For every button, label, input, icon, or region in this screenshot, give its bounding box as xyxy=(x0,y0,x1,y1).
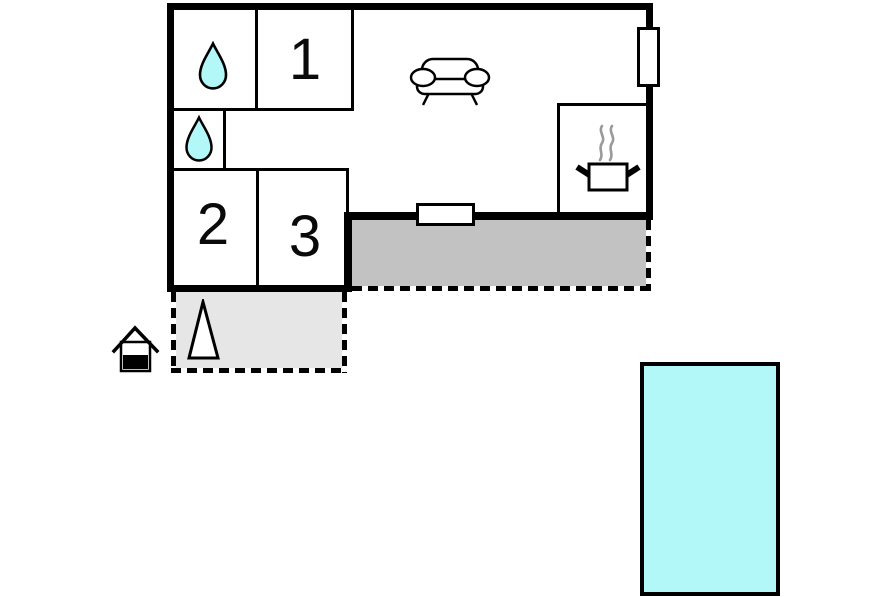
wall-room1-right xyxy=(351,10,354,108)
room-label-3: 3 xyxy=(275,208,335,266)
patio-dashed-border-left xyxy=(171,292,176,373)
wall-terrace-left xyxy=(344,212,352,292)
cooking-pot-icon xyxy=(570,118,646,194)
patio-dashed-border-right xyxy=(342,292,347,373)
wall-left xyxy=(167,3,174,292)
wall-wc-right xyxy=(223,111,226,171)
patio-dashed-border-bottom xyxy=(171,368,347,373)
wall-living-bottom xyxy=(344,212,653,220)
room-label-1: 1 xyxy=(275,31,335,89)
wall-bathroom-room1-divider xyxy=(255,10,258,108)
wall-top xyxy=(167,3,653,10)
floorplan-canvas: 1 2 3 xyxy=(0,0,896,597)
wall-room3-right xyxy=(346,171,349,212)
terrace-area xyxy=(352,220,646,286)
wall-bathroom-bottom xyxy=(174,108,354,111)
window-terrace-door xyxy=(416,203,475,226)
tree-icon xyxy=(185,299,223,361)
terrace-dashed-border-bottom xyxy=(352,286,652,291)
wall-kitchen-left xyxy=(557,103,560,212)
swimming-pool xyxy=(640,362,780,596)
water-drop-icon xyxy=(184,113,214,165)
terrace-dashed-border-right xyxy=(646,220,651,291)
window-right-wall xyxy=(637,27,660,87)
room-label-2: 2 xyxy=(183,196,243,254)
wall-kitchen-top xyxy=(560,103,646,106)
shed-icon xyxy=(111,322,163,374)
wall-bedroom-divider xyxy=(256,171,259,285)
wall-bedrooms-top xyxy=(174,168,349,171)
wall-bedrooms-bottom xyxy=(167,285,352,292)
water-drop-icon xyxy=(197,41,229,91)
sofa-icon xyxy=(405,55,495,108)
